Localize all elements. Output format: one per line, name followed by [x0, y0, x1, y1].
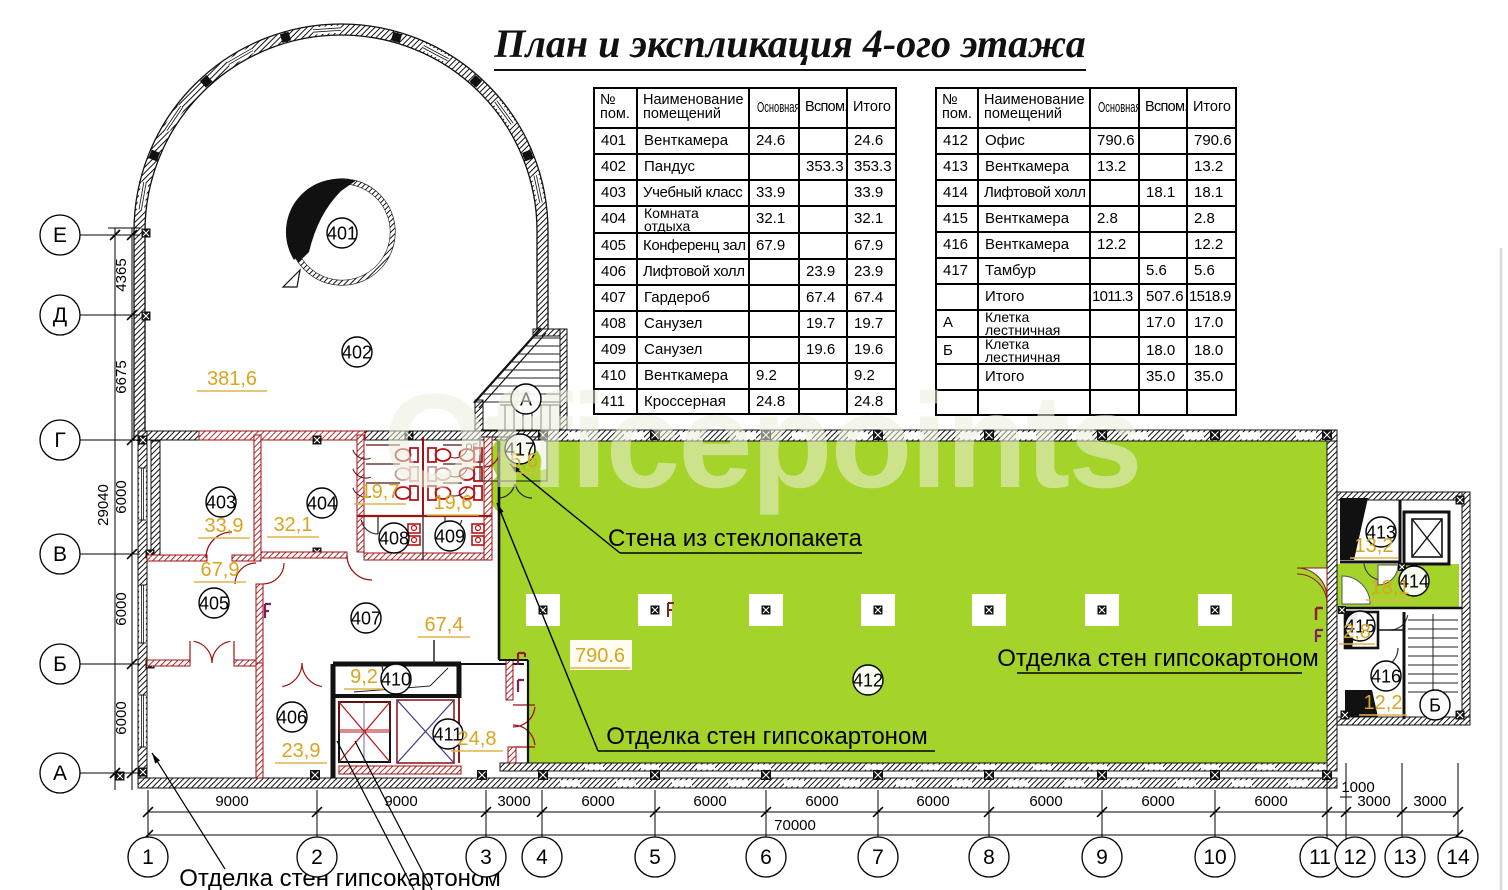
svg-text:406: 406 [277, 707, 307, 727]
svg-text:Стена из стеклопакета: Стена из стеклопакета [608, 525, 863, 552]
svg-text:6000: 6000 [1029, 793, 1062, 810]
svg-text:6000: 6000 [805, 793, 838, 810]
svg-text:409: 409 [435, 526, 465, 546]
svg-text:23,9: 23,9 [282, 740, 321, 762]
svg-text:403: 403 [206, 492, 236, 512]
svg-text:6000: 6000 [916, 793, 949, 810]
svg-text:7: 7 [872, 846, 884, 869]
svg-text:А: А [53, 762, 67, 785]
svg-text:790.6: 790.6 [575, 645, 625, 667]
svg-text:10: 10 [1203, 846, 1226, 869]
svg-text:9: 9 [1096, 846, 1108, 869]
svg-text:6000: 6000 [1254, 793, 1287, 810]
svg-text:3: 3 [480, 846, 492, 869]
svg-text:67,4: 67,4 [425, 614, 464, 636]
svg-text:5: 5 [649, 846, 661, 869]
svg-text:408: 408 [379, 528, 409, 548]
svg-text:405: 405 [199, 593, 229, 613]
svg-text:6000: 6000 [581, 793, 614, 810]
svg-text:33,9: 33,9 [205, 515, 244, 537]
svg-text:18,1: 18,1 [1371, 577, 1410, 599]
svg-text:В: В [53, 543, 67, 566]
svg-text:410: 410 [381, 669, 411, 689]
svg-text:402: 402 [342, 342, 372, 362]
svg-text:32,1: 32,1 [274, 514, 313, 536]
svg-text:2: 2 [311, 846, 323, 869]
svg-text:6000: 6000 [113, 592, 130, 625]
svg-text:12,2: 12,2 [1364, 692, 1403, 714]
svg-text:9000: 9000 [384, 793, 417, 810]
svg-text:6000: 6000 [693, 793, 726, 810]
svg-text:4365: 4365 [113, 258, 130, 291]
svg-text:24,8: 24,8 [458, 728, 497, 750]
svg-text:6000: 6000 [1141, 793, 1174, 810]
svg-text:6: 6 [760, 846, 772, 869]
svg-text:29040: 29040 [95, 484, 112, 526]
svg-text:Д: Д [53, 304, 67, 327]
svg-text:2,8: 2,8 [1343, 621, 1371, 643]
svg-text:9000: 9000 [215, 793, 248, 810]
svg-text:70000: 70000 [774, 817, 816, 834]
svg-text:401: 401 [327, 223, 357, 243]
svg-text:11: 11 [1309, 846, 1331, 869]
svg-text:Отделка стен гипсокартоном: Отделка стен гипсокартоном [997, 645, 1319, 672]
svg-text:416: 416 [1371, 666, 1401, 686]
svg-text:13,2: 13,2 [1355, 535, 1394, 557]
svg-text:Б: Б [53, 653, 67, 676]
svg-text:13: 13 [1393, 846, 1416, 869]
svg-text:8: 8 [983, 846, 995, 869]
svg-text:381,6: 381,6 [207, 368, 257, 390]
svg-text:6000: 6000 [113, 480, 130, 513]
svg-text:3000: 3000 [1413, 793, 1446, 810]
svg-text:407: 407 [351, 608, 381, 628]
svg-text:404: 404 [307, 493, 337, 513]
svg-text:1: 1 [142, 846, 154, 869]
svg-text:Отделка стен гипсокартоном: Отделка стен гипсокартоном [606, 723, 928, 750]
svg-text:1000: 1000 [1341, 779, 1374, 796]
svg-text:Б: Б [1429, 695, 1441, 715]
svg-text:6000: 6000 [113, 701, 130, 734]
svg-text:3000: 3000 [497, 793, 530, 810]
svg-text:9,2: 9,2 [350, 666, 378, 688]
svg-text:14: 14 [1446, 846, 1470, 869]
svg-text:12: 12 [1343, 846, 1366, 869]
svg-text:Г: Г [54, 429, 65, 452]
svg-text:4: 4 [536, 846, 548, 869]
svg-text:Отделка стен гипсокартоном: Отделка стен гипсокартоном [179, 865, 501, 890]
svg-text:Е: Е [53, 224, 67, 247]
svg-text:67,9: 67,9 [201, 559, 240, 581]
svg-text:412: 412 [853, 670, 883, 690]
svg-text:6675: 6675 [113, 360, 130, 393]
